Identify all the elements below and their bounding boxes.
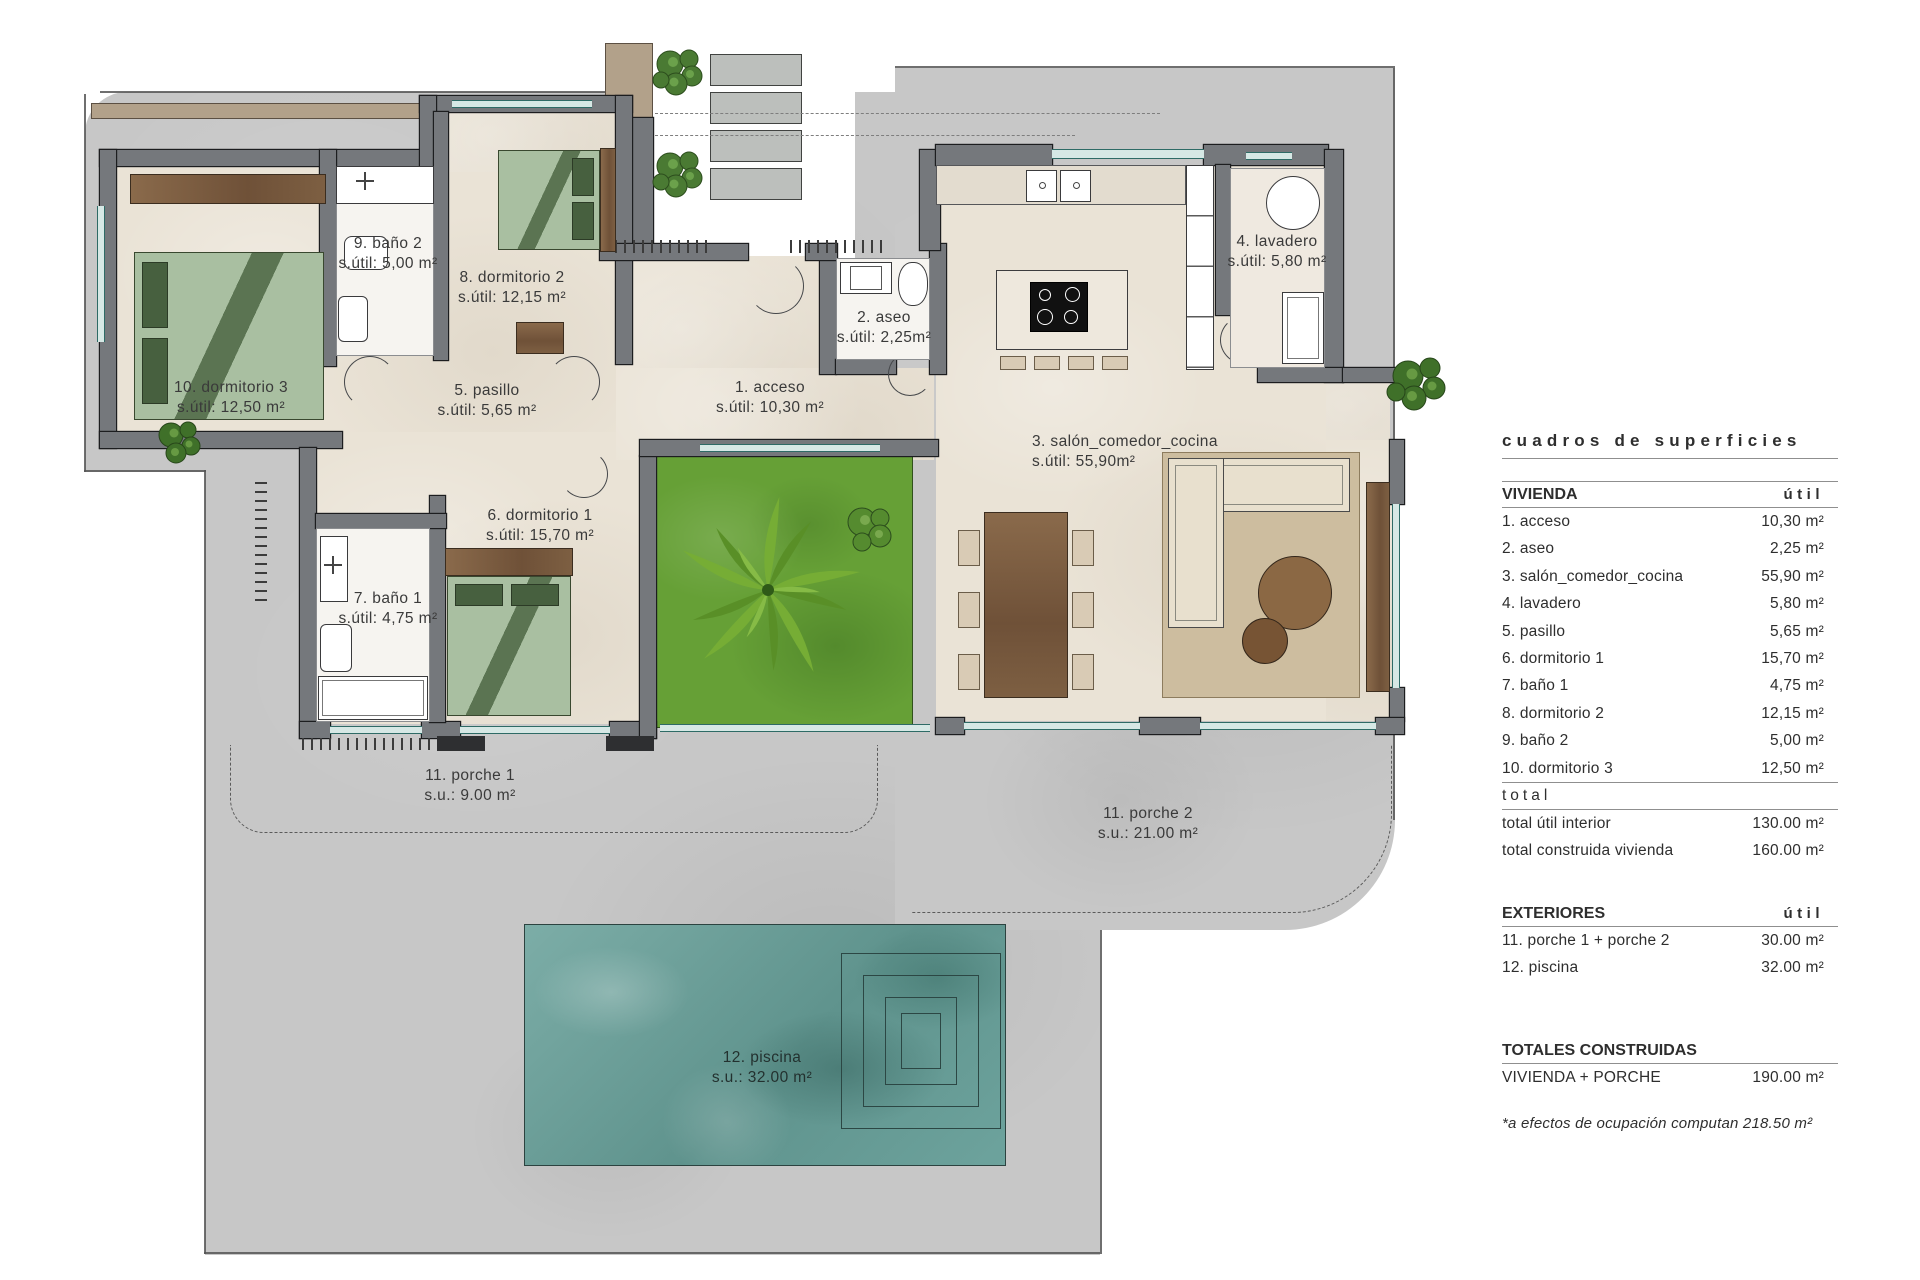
row-value: 130.00 m² bbox=[1752, 810, 1824, 837]
total-row: total construida vivienda160.00 m² bbox=[1502, 837, 1838, 864]
row-value: 190.00 m² bbox=[1752, 1064, 1824, 1091]
row-label: 12. piscina bbox=[1502, 954, 1578, 981]
wall-segment bbox=[100, 150, 436, 166]
dining-chair bbox=[958, 654, 980, 690]
wall-segment bbox=[1376, 718, 1404, 734]
row-label: total construida vivienda bbox=[1502, 837, 1673, 864]
walkway-slab bbox=[710, 54, 802, 86]
area-row: 2. aseo2,25 m² bbox=[1502, 535, 1838, 562]
bar-stool bbox=[1102, 356, 1128, 370]
burner-icon bbox=[1064, 310, 1078, 324]
tree-icon bbox=[648, 42, 710, 104]
row-value: 55,90 m² bbox=[1761, 563, 1824, 590]
row-value: 2,25 m² bbox=[1770, 535, 1824, 562]
wall-segment bbox=[100, 432, 342, 448]
sliding-door bbox=[964, 722, 1140, 730]
window bbox=[330, 726, 422, 734]
room-label-acceso: 1. acceso s.útil: 10,30 m² bbox=[716, 378, 824, 419]
coffee-table bbox=[1242, 618, 1288, 664]
room-area: s.útil: 15,70 m² bbox=[486, 526, 594, 546]
dining-chair bbox=[958, 530, 980, 566]
kitchen-sink bbox=[1060, 170, 1091, 202]
swimming-pool bbox=[524, 924, 1006, 1166]
row-value: 4,75 m² bbox=[1770, 672, 1824, 699]
bed-pillow bbox=[142, 262, 168, 328]
label-porche2: 11. porche 2 s.u.: 21.00 m² bbox=[1098, 804, 1198, 845]
room-name: 2. aseo bbox=[837, 308, 931, 328]
bed-pillow bbox=[511, 584, 559, 606]
panel-title: cuadros de superficies bbox=[1502, 430, 1838, 452]
window bbox=[1392, 504, 1400, 688]
area-row: 10. dormitorio 312,50 m² bbox=[1502, 755, 1838, 782]
row-value: 5,65 m² bbox=[1770, 618, 1824, 645]
plot-edge bbox=[895, 66, 1395, 68]
floor-living-northeast bbox=[1326, 382, 1390, 440]
divider bbox=[1502, 458, 1838, 459]
floor-plan-canvas: 1. acceso s.útil: 10,30 m² 2. aseo s.úti… bbox=[0, 0, 1920, 1280]
window bbox=[97, 206, 105, 342]
room-name: 5. pasillo bbox=[437, 381, 536, 401]
plot-edge bbox=[84, 94, 86, 472]
row-label: 3. salón_comedor_cocina bbox=[1502, 563, 1683, 590]
occupancy-note: *a efectos de ocupación computan 218.50 … bbox=[1502, 1115, 1838, 1132]
row-value: 5,80 m² bbox=[1770, 590, 1824, 617]
dresser bbox=[516, 322, 564, 354]
toilet bbox=[898, 262, 928, 306]
dining-chair bbox=[958, 592, 980, 628]
plot-edge bbox=[1100, 930, 1102, 1252]
area-row: 12. piscina32.00 m² bbox=[1502, 954, 1838, 981]
dining-table bbox=[984, 512, 1068, 698]
plot-edge bbox=[204, 470, 206, 1254]
wall-segment bbox=[930, 244, 946, 374]
room-name: 9. baño 2 bbox=[338, 234, 437, 254]
toilet bbox=[338, 296, 368, 342]
walkway-slab bbox=[710, 92, 802, 124]
area-row: 5. pasillo5,65 m² bbox=[1502, 618, 1838, 645]
window bbox=[452, 100, 592, 108]
sliding-door bbox=[700, 444, 880, 452]
tall-cabinets bbox=[1186, 165, 1214, 370]
room-label-pasillo: 5. pasillo s.útil: 5,65 m² bbox=[437, 381, 536, 422]
row-value: 5,00 m² bbox=[1770, 727, 1824, 754]
plot-edge bbox=[84, 470, 206, 472]
bar-stool bbox=[1000, 356, 1026, 370]
row-value: 10,30 m² bbox=[1761, 508, 1824, 535]
kitchen-sink bbox=[1026, 170, 1057, 202]
bed-headboard bbox=[600, 148, 616, 252]
room-label-bano1: 7. baño 1 s.útil: 4,75 m² bbox=[338, 589, 437, 630]
bush-icon bbox=[838, 498, 900, 560]
tv-console bbox=[1366, 482, 1390, 692]
row-value: 32.00 m² bbox=[1761, 954, 1824, 981]
burner-icon bbox=[1039, 289, 1051, 301]
dining-chair bbox=[1072, 530, 1094, 566]
room-name: 4. lavadero bbox=[1227, 232, 1326, 252]
total-row: VIVIENDA + PORCHE190.00 m² bbox=[1502, 1064, 1838, 1091]
window bbox=[460, 726, 610, 734]
area-row: 7. baño 14,75 m² bbox=[1502, 672, 1838, 699]
row-value: 30.00 m² bbox=[1761, 927, 1824, 954]
room-area: s.útil: 5,80 m² bbox=[1227, 252, 1326, 272]
row-label: 9. baño 2 bbox=[1502, 727, 1568, 754]
alignment-dashed-line bbox=[655, 135, 1075, 136]
window bbox=[1246, 152, 1292, 160]
wall-segment bbox=[936, 718, 964, 734]
room-area: s.u.: 9.00 m² bbox=[424, 786, 515, 806]
total-heading: total bbox=[1502, 783, 1838, 809]
total-row: total útil interior130.00 m² bbox=[1502, 810, 1838, 837]
room-name: 7. baño 1 bbox=[338, 589, 437, 609]
row-label: 1. acceso bbox=[1502, 508, 1570, 535]
area-row: 4. lavadero5,80 m² bbox=[1502, 590, 1838, 617]
wall-segment bbox=[316, 514, 446, 528]
laundry-basin bbox=[1266, 176, 1320, 230]
burner-icon bbox=[1037, 309, 1053, 325]
porch1-outline bbox=[230, 745, 878, 833]
row-label: 6. dormitorio 1 bbox=[1502, 645, 1604, 672]
column-heading: útil bbox=[1784, 482, 1825, 507]
row-value: 12,15 m² bbox=[1761, 700, 1824, 727]
row-label: 11. porche 1 + porche 2 bbox=[1502, 927, 1670, 954]
exteriores-header: EXTERIORES útil bbox=[1502, 901, 1838, 926]
wall-segment bbox=[300, 722, 330, 738]
room-area: s.útil: 5,00 m² bbox=[338, 254, 437, 274]
walkway-slab bbox=[710, 168, 802, 200]
bar-stool bbox=[1068, 356, 1094, 370]
hatch-strip bbox=[255, 482, 267, 608]
door-arc bbox=[548, 356, 600, 408]
tree-icon bbox=[150, 414, 208, 470]
room-label-dormitorio3: 10. dormitorio 3 s.útil: 12,50 m² bbox=[174, 378, 288, 419]
sink-basin bbox=[850, 266, 882, 290]
vanity-counter bbox=[336, 166, 434, 204]
wall-segment bbox=[300, 448, 316, 738]
area-row: 9. baño 25,00 m² bbox=[1502, 727, 1838, 754]
plot-edge bbox=[204, 1252, 1102, 1254]
room-label-dormitorio1: 6. dormitorio 1 s.útil: 15,70 m² bbox=[486, 506, 594, 547]
area-row: 8. dormitorio 212,15 m² bbox=[1502, 700, 1838, 727]
room-area: s.útil: 4,75 m² bbox=[338, 609, 437, 629]
room-area: s.útil: 2,25m² bbox=[837, 328, 931, 348]
bed-pillow bbox=[455, 584, 503, 606]
row-label: VIVIENDA + PORCHE bbox=[1502, 1064, 1661, 1091]
room-name: 10. dormitorio 3 bbox=[174, 378, 288, 398]
row-label: 10. dormitorio 3 bbox=[1502, 755, 1613, 782]
area-row: 1. acceso10,30 m² bbox=[1502, 508, 1838, 535]
wardrobe bbox=[130, 174, 326, 204]
vivienda-header: VIVIENDA útil bbox=[1502, 482, 1838, 507]
row-value: 15,70 m² bbox=[1761, 645, 1824, 672]
sliding-door bbox=[1200, 722, 1376, 730]
row-value: 160.00 m² bbox=[1752, 837, 1824, 864]
room-area: s.útil: 5,65 m² bbox=[437, 401, 536, 421]
room-label-salon: 3. salón_comedor_cocina s.útil: 55,90m² bbox=[1032, 432, 1218, 473]
area-row: 6. dormitorio 115,70 m² bbox=[1502, 645, 1838, 672]
door-arc bbox=[748, 258, 804, 314]
room-name: 8. dormitorio 2 bbox=[458, 268, 566, 288]
room-area: s.útil: 10,30 m² bbox=[716, 398, 824, 418]
faucet-icon bbox=[324, 556, 342, 574]
door-arc bbox=[344, 356, 396, 408]
burner-icon bbox=[1065, 287, 1080, 302]
bed-pillow bbox=[572, 202, 594, 240]
wall-segment bbox=[1390, 440, 1404, 504]
wall-segment bbox=[616, 96, 632, 364]
row-label: 8. dormitorio 2 bbox=[1502, 700, 1604, 727]
room-name: 11. porche 2 bbox=[1098, 804, 1198, 824]
tree-icon bbox=[648, 144, 710, 206]
entry-mat bbox=[790, 240, 882, 253]
room-label-aseo: 2. aseo s.útil: 2,25m² bbox=[837, 308, 931, 349]
row-label: 7. baño 1 bbox=[1502, 672, 1568, 699]
label-piscina: 12. piscina s.u.: 32.00 m² bbox=[712, 1048, 812, 1089]
drain-icon bbox=[1073, 182, 1080, 189]
faucet-icon bbox=[356, 172, 374, 190]
sofa bbox=[1168, 458, 1224, 628]
cooktop bbox=[1030, 282, 1088, 332]
washing-machine bbox=[1282, 292, 1324, 364]
room-name: 3. salón_comedor_cocina bbox=[1032, 432, 1218, 452]
wall-segment bbox=[640, 456, 656, 738]
surface-table-panel: cuadros de superficies VIVIENDA útil 1. … bbox=[1502, 430, 1838, 1132]
shower-tray bbox=[318, 676, 428, 720]
row-label: total útil interior bbox=[1502, 810, 1611, 837]
bed-pillow bbox=[572, 158, 594, 196]
tree-icon bbox=[1382, 350, 1454, 416]
row-label: 5. pasillo bbox=[1502, 618, 1565, 645]
room-area: s.útil: 12,50 m² bbox=[174, 398, 288, 418]
wall-segment bbox=[1140, 718, 1200, 734]
row-label: 4. lavadero bbox=[1502, 590, 1581, 617]
section-heading: EXTERIORES bbox=[1502, 901, 1605, 926]
dining-chair bbox=[1072, 592, 1094, 628]
room-label-bano2: 9. baño 2 s.útil: 5,00 m² bbox=[338, 234, 437, 275]
bed-pillow bbox=[142, 338, 168, 404]
plot-edge bbox=[100, 91, 615, 93]
room-label-lavadero: 4. lavadero s.útil: 5,80 m² bbox=[1227, 232, 1326, 273]
drain-icon bbox=[1039, 182, 1046, 189]
room-name: 12. piscina bbox=[712, 1048, 812, 1068]
alignment-dashed-line bbox=[655, 113, 1160, 114]
row-label: 2. aseo bbox=[1502, 535, 1554, 562]
room-area: s.u.: 21.00 m² bbox=[1098, 824, 1198, 844]
room-name: 1. acceso bbox=[716, 378, 824, 398]
door-arc bbox=[560, 450, 608, 498]
room-area: s.útil: 12,15 m² bbox=[458, 288, 566, 308]
window bbox=[1052, 149, 1204, 159]
bar-stool bbox=[1034, 356, 1060, 370]
dining-chair bbox=[1072, 654, 1094, 690]
sliding-door bbox=[660, 724, 930, 732]
totales-header: TOTALES CONSTRUIDAS bbox=[1502, 1038, 1838, 1063]
bed-headboard bbox=[445, 548, 573, 576]
label-porche1: 11. porche 1 s.u.: 9.00 m² bbox=[424, 766, 515, 807]
entry-mat bbox=[615, 240, 711, 253]
wall-segment bbox=[1390, 688, 1404, 721]
row-value: 12,50 m² bbox=[1761, 755, 1824, 782]
room-area: s.útil: 55,90m² bbox=[1032, 452, 1218, 472]
room-name: 11. porche 1 bbox=[424, 766, 515, 786]
wall-segment bbox=[936, 145, 1052, 165]
room-label-dormitorio2: 8. dormitorio 2 s.útil: 12,15 m² bbox=[458, 268, 566, 309]
wall-segment bbox=[1325, 150, 1343, 382]
wall-segment bbox=[820, 244, 836, 374]
room-name: 6. dormitorio 1 bbox=[486, 506, 594, 526]
toilet bbox=[320, 624, 352, 672]
wall-segment bbox=[1258, 368, 1343, 382]
room-area: s.u.: 32.00 m² bbox=[712, 1068, 812, 1088]
area-row: 11. porche 1 + porche 230.00 m² bbox=[1502, 927, 1838, 954]
wall-segment bbox=[836, 360, 896, 374]
pool-steps bbox=[901, 1013, 941, 1069]
section-heading: VIVIENDA bbox=[1502, 482, 1578, 507]
column-heading: útil bbox=[1784, 901, 1825, 926]
area-row: 3. salón_comedor_cocina55,90 m² bbox=[1502, 563, 1838, 590]
section-heading: TOTALES CONSTRUIDAS bbox=[1502, 1038, 1697, 1063]
